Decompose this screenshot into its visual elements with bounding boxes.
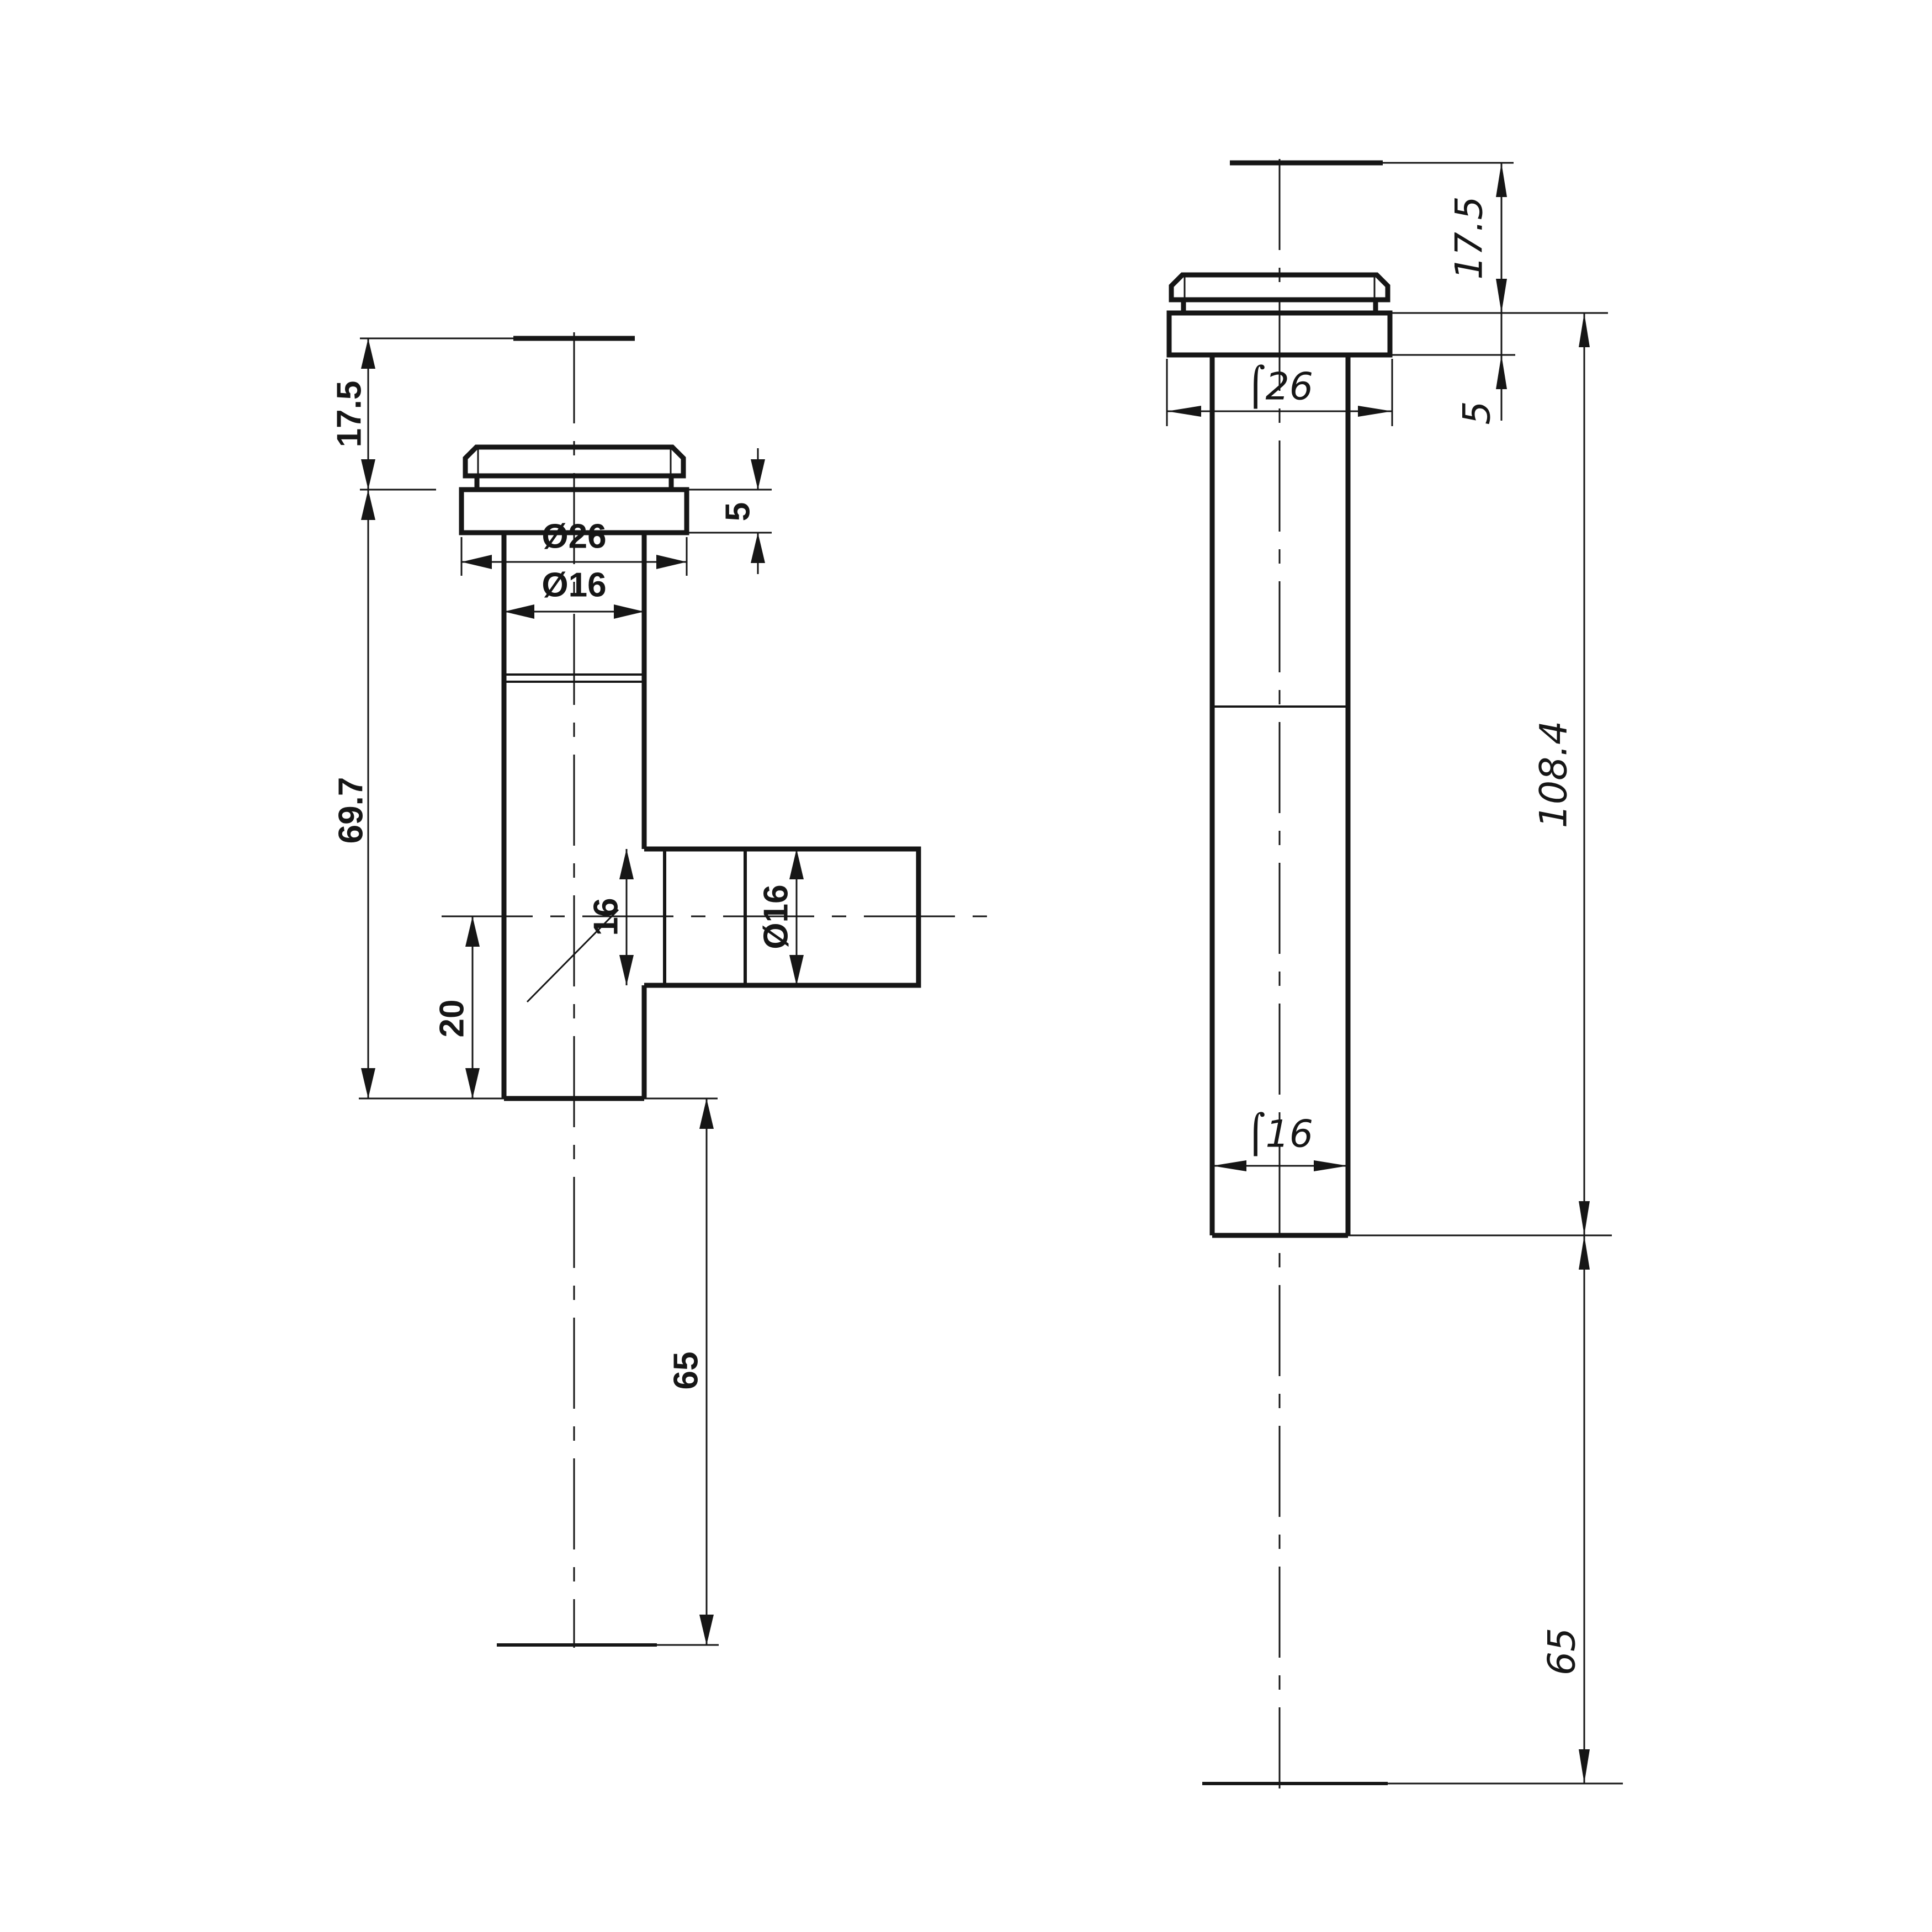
right-dim-top-height: 17.5	[1448, 163, 1508, 313]
arrowhead-up-icon	[619, 849, 634, 879]
left-dim-top-height: 17.5	[331, 338, 376, 490]
arrowhead-down-icon	[1579, 1749, 1590, 1784]
left-dim-17-5-label: 17.5	[331, 381, 369, 448]
cad-drawing-canvas: 17.5 69.7 5 Ø26 Ø16	[0, 0, 1932, 1932]
arrowhead-right-icon	[614, 604, 644, 619]
right-dim-body-length: 108.4	[1532, 313, 1590, 1235]
left-dim-branch-width: 16	[587, 849, 634, 985]
right-dim-dia16-label: ⌠16	[1246, 1112, 1313, 1156]
arrowhead-up-icon	[1496, 163, 1507, 197]
right-dim-17-5-label: 17.5	[1448, 196, 1492, 279]
left-dim-16-label: 16	[587, 898, 625, 936]
arrowhead-down-icon	[699, 1615, 714, 1645]
arrowhead-up-icon	[1579, 1235, 1590, 1270]
left-dim-dia16-label: Ø16	[542, 566, 606, 604]
arrowhead-up-icon	[465, 916, 480, 947]
left-dim-branch-dia16-label: Ø16	[757, 884, 795, 949]
arrowhead-up-icon	[789, 849, 804, 879]
arrowhead-down-icon	[1579, 1201, 1590, 1235]
right-extension-lines	[1167, 163, 1623, 1784]
left-dim-dia26-label: Ø26	[542, 518, 606, 556]
arrowhead-up-icon	[361, 338, 375, 369]
arrowhead-right-icon	[1314, 1160, 1348, 1171]
left-dim-tube-diameter: Ø16	[504, 566, 644, 619]
right-dim-tail-length: 65	[1541, 1235, 1590, 1784]
arrowhead-right-icon	[656, 555, 687, 569]
left-centerlines	[442, 332, 1002, 1648]
arrowhead-left-icon	[1212, 1160, 1246, 1171]
arrowhead-up-icon	[1496, 355, 1507, 389]
right-view-straight-fitting: 17.5 5 ⌠26 108.4 ⌠16	[1167, 159, 1623, 1788]
right-dim-5-label: 5	[1456, 401, 1499, 424]
arrowhead-left-icon	[1167, 406, 1201, 417]
arrowhead-down-icon	[619, 955, 634, 985]
left-dim-branch-offset: 20	[433, 916, 480, 1098]
right-dim-flange-thickness: 5	[1456, 313, 1508, 425]
arrowhead-down-icon	[1496, 279, 1507, 313]
left-dim-branch-diameter: Ø16	[757, 849, 804, 985]
drawing-sheet: 17.5 69.7 5 Ø26 Ø16	[0, 0, 1932, 1932]
arrowhead-left-icon	[461, 555, 492, 569]
arrowhead-up-icon	[699, 1098, 714, 1129]
arrowhead-left-icon	[504, 604, 534, 619]
left-dim-body-length: 69.7	[332, 490, 376, 1098]
right-dim-65-label: 65	[1541, 1628, 1584, 1676]
arrowhead-down-icon	[789, 955, 804, 985]
right-dim-108-4-label: 108.4	[1532, 721, 1576, 829]
arrowhead-down-icon	[751, 459, 765, 490]
left-part-outline	[461, 338, 919, 1645]
left-dim-65-label: 65	[667, 1352, 705, 1390]
arrowhead-right-icon	[1358, 406, 1392, 417]
arrowhead-up-icon	[751, 533, 765, 563]
arrowhead-down-icon	[361, 1068, 375, 1098]
left-dim-69-7-label: 69.7	[332, 777, 370, 844]
arrowhead-up-icon	[1579, 313, 1590, 347]
arrowhead-down-icon	[465, 1068, 480, 1098]
left-view-tee-fitting: 17.5 69.7 5 Ø26 Ø16	[331, 332, 1002, 1648]
arrowhead-up-icon	[361, 490, 375, 520]
left-dim-flange-diameter: Ø26	[461, 518, 687, 570]
arrowhead-down-icon	[361, 459, 375, 490]
left-dim-tail-length: 65	[667, 1098, 714, 1645]
left-dim-flange-thickness: 5	[719, 448, 766, 574]
left-dim-5-label: 5	[719, 502, 757, 521]
left-dim-20-label: 20	[433, 1000, 471, 1038]
right-dim-dia26-label: ⌠26	[1246, 364, 1313, 409]
